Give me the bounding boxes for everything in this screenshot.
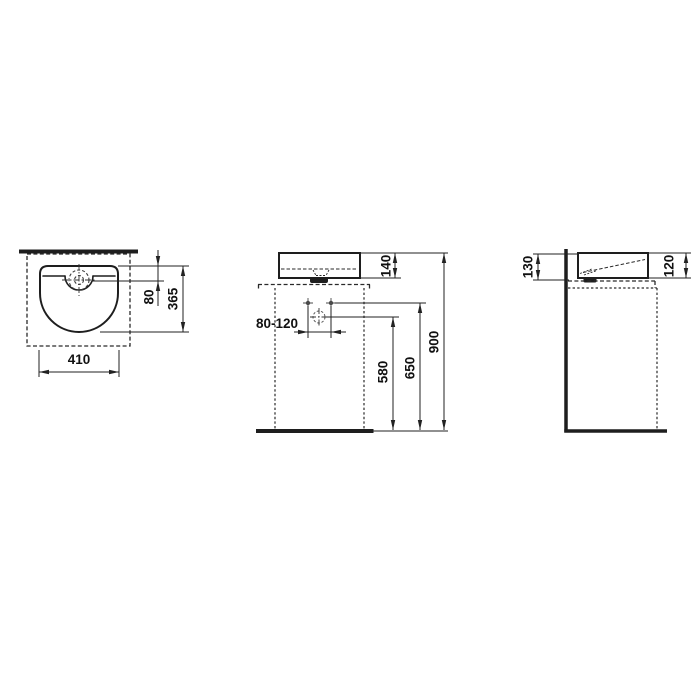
countertop-dashed [568, 281, 655, 288]
dimension-650: 650 [403, 303, 423, 430]
dimension-410: 410 [39, 350, 119, 377]
arrowhead [391, 420, 395, 430]
drain-symbol-front [310, 308, 328, 326]
dim-label-900: 900 [427, 331, 442, 354]
arrowhead [391, 317, 395, 327]
dim-label-580: 580 [376, 361, 391, 384]
dimension-900: 900 [427, 253, 447, 430]
arrowhead [181, 322, 185, 332]
arrowhead [442, 420, 446, 430]
dimension-120: 120 [662, 253, 689, 278]
dim-label-130: 130 [521, 256, 536, 279]
dim-label-120: 120 [662, 255, 677, 278]
dimension-580: 580 [376, 317, 396, 430]
top-view: 80 365 410 [19, 250, 189, 377]
drain-fitting [310, 278, 328, 284]
technical-drawing-canvas: 80 365 410 [0, 0, 700, 700]
arrowhead [418, 303, 422, 313]
dimension-130: 130 [521, 254, 541, 280]
arrowhead [298, 330, 308, 334]
dim-label-410: 410 [68, 352, 91, 367]
dim-label-365: 365 [166, 287, 181, 310]
arrowhead [39, 370, 49, 374]
arrowhead [442, 253, 446, 263]
drawing-page: 80 365 410 [0, 0, 700, 700]
arrowhead [109, 370, 119, 374]
arrowhead [684, 253, 688, 263]
arrowhead [181, 266, 185, 276]
basin-outline-side [578, 253, 648, 278]
arrowhead [536, 254, 540, 264]
dimension-80-120: 80-120 [256, 316, 346, 334]
basin-outline-front [279, 253, 360, 278]
dimension-365: 365 [166, 266, 186, 332]
drain-fitting [584, 278, 597, 283]
arrowhead [536, 270, 540, 280]
dimension-140: 140 [379, 253, 398, 278]
arrowhead [418, 420, 422, 430]
dimension-80: 80 [142, 250, 161, 306]
side-view: 130 120 [521, 249, 692, 433]
drain-cross [310, 308, 328, 326]
dim-label-80: 80 [142, 289, 157, 304]
arrowhead [331, 330, 341, 334]
dim-label-650: 650 [403, 357, 418, 380]
dim-label-80-120: 80-120 [256, 316, 298, 331]
front-view: 80-120 140 580 650 900 [256, 253, 448, 431]
arrowhead [156, 256, 160, 266]
arrowhead [684, 268, 688, 278]
dim-label-140: 140 [379, 255, 394, 278]
